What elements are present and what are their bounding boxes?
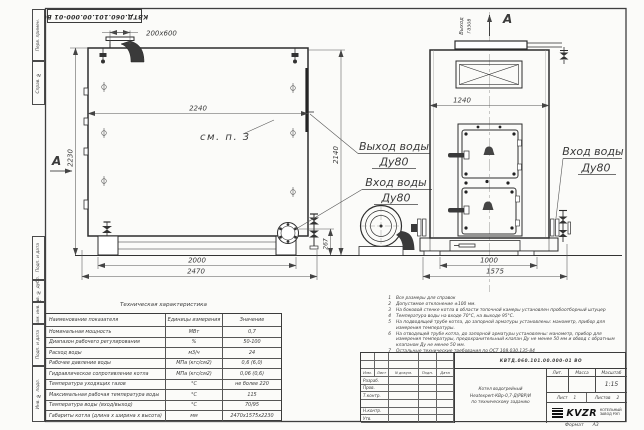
note-item: 6На отводящей трубе котла, до запорной а… — [382, 332, 624, 349]
kvzr-logo-icon — [552, 408, 563, 418]
change-header: Изм. — [361, 369, 375, 377]
table-cell: % — [166, 338, 223, 349]
change-header: Лист — [375, 369, 389, 377]
company-cell: KVZR КОТЕЛЬНЫЙ ЗАВОД РЭП — [546, 403, 627, 423]
upper-door — [448, 130, 522, 178]
tech-table-header: Наименование показателя — [46, 314, 166, 327]
scale-label: Масштаб — [595, 369, 627, 377]
table-cell: 0,06 (0,6) — [223, 369, 281, 380]
margin-stamp-podp-data-2: Подп. и дата — [32, 324, 45, 366]
flue-collar — [455, 41, 527, 49]
table-cell: °С — [166, 380, 223, 391]
tech-table: Наименование показателя Единицы измерени… — [45, 313, 282, 421]
mass-value — [568, 377, 595, 393]
table-cell: МВт — [166, 327, 223, 338]
change-header: Подп. — [419, 369, 437, 377]
lit-value — [546, 377, 568, 393]
inlet-flange — [278, 223, 299, 244]
table-cell: Температура уходящих газов — [46, 380, 166, 391]
door-panel — [458, 124, 522, 236]
water-outlet-dn: Ду80 — [378, 156, 408, 169]
see-note-label: см. п. 3 — [200, 132, 251, 143]
section-a-label: А — [51, 154, 61, 168]
pipe-label-right: Вход воды Ду80 — [556, 145, 624, 218]
role-label: Пров. — [361, 385, 389, 393]
dim-2230: 2230 — [67, 149, 75, 167]
flue-duct — [106, 37, 144, 62]
role-label: Утв. — [361, 415, 389, 423]
water-inlet-right-dn: Ду80 — [580, 162, 610, 175]
fitting-marks — [102, 82, 296, 197]
drawing-sheet: 200х600 2240 2230 2140 2000 2470 267 см.… — [0, 0, 644, 430]
role-label: Разраб. — [361, 377, 389, 385]
table-cell: м3/ч — [166, 348, 223, 359]
note-item: 1Все размеры для справок — [382, 296, 624, 302]
table-cell: 50-100 — [223, 338, 281, 349]
table-cell: 0,6 (6,0) — [223, 359, 281, 370]
view-a-label: А — [502, 12, 512, 26]
margin-stamp-inv-podl: Инв. № подл. — [32, 366, 45, 422]
dim-1000: 1000 — [480, 257, 498, 265]
scale-value: 1:15 — [595, 377, 627, 393]
signature-table: Разраб. Пров. Т.контр. Н.контр. Утв. — [361, 377, 454, 423]
mass-label: Масса — [568, 369, 595, 377]
door-lock-icon — [484, 147, 495, 156]
dim-2470: 2470 — [187, 268, 205, 276]
top-stamp-text: КВТД.060.101.00.000-01 ВО — [41, 13, 148, 20]
inlet-valve-stack — [309, 214, 319, 249]
dim-2140: 2140 — [332, 146, 340, 164]
table-cell: Гидравлическое сопротивление котла — [46, 369, 166, 380]
door-lock-icon — [483, 202, 494, 211]
water-outlet-label: Выход воды — [359, 140, 429, 153]
role-label — [361, 400, 389, 408]
table-cell: Расход воды — [46, 348, 166, 359]
logo-text: KVZR — [566, 408, 597, 419]
sheets-cell: Листов2 — [586, 393, 627, 403]
water-inlet-dn: Ду80 — [380, 192, 410, 205]
door-handle — [448, 208, 465, 213]
table-cell: 70/95 — [223, 401, 281, 412]
margin-stamp-vzam-inv: Взам. инв. № — [32, 302, 45, 324]
tech-table-title: Техническая характеристика — [45, 302, 282, 308]
role-label: Т.контр. — [361, 392, 389, 400]
dim-2000: 2000 — [188, 257, 206, 265]
margin-stamp-podp-data-1: Подп. и дата — [32, 236, 45, 280]
drain-valve-icon — [102, 222, 112, 236]
note-item: 2Допустимое отклонение ±100 мм. — [382, 302, 624, 308]
table-cell: Рабочее давление воды — [46, 359, 166, 370]
table-cell: не более 220 — [223, 380, 281, 391]
table-cell: МПа (кгс/см2) — [166, 359, 223, 370]
door-handle — [448, 153, 465, 158]
base-frame — [420, 238, 558, 256]
margin-stamp-sprav-no: Справ. № — [32, 61, 45, 105]
sheet-cell: Лист1 — [546, 393, 586, 403]
table-cell: °С — [166, 390, 223, 401]
front-left-flange — [411, 219, 426, 236]
table-cell: Номинальная мощность — [46, 327, 166, 338]
table-cell: мм — [166, 411, 223, 422]
table-cell: Габариты котла (длина х ширина х высота) — [46, 411, 166, 422]
table-cell: 115 — [223, 390, 281, 401]
boiler-body-side — [88, 48, 308, 236]
table-cell: Температура воды (вход/выход) — [46, 401, 166, 412]
top-designation-stamp: КВТД.060.101.00.000-01 ВО — [47, 9, 142, 23]
explosion-hatch — [456, 61, 522, 88]
fan-blower — [359, 206, 415, 256]
dim-267: 267 — [323, 238, 330, 250]
role-label: Н.контр. — [361, 408, 389, 416]
technical-notes: 1Все размеры для справок 2Допустимое отк… — [382, 296, 624, 355]
change-header: N докум. — [389, 369, 419, 377]
table-cell: МПа (кгс/см2) — [166, 369, 223, 380]
tech-table-header: Единицы измерения — [166, 314, 223, 327]
table-cell: Диапазон рабочего регулирования — [46, 338, 166, 349]
pipe-labels-left: Выход воды Ду80 Вход воды Ду80 — [296, 114, 432, 229]
company-logo: KVZR КОТЕЛЬНЫЙ ЗАВОД РЭП — [552, 408, 621, 419]
table-cell: 24 — [223, 348, 281, 359]
front-right-flange-valve — [551, 210, 571, 242]
table-cell: 0,7 — [223, 327, 281, 338]
dim-2240: 2240 — [189, 105, 207, 113]
lit-label: Лит. — [546, 369, 568, 377]
table-cell: 2470х1575х2230 — [223, 411, 281, 422]
drawing-designation: КВТД.060.101.00.000-01 ВО — [454, 353, 627, 369]
dim-1575: 1575 — [486, 268, 504, 276]
table-cell: Максимальная рабочая температура воды — [46, 390, 166, 401]
note-item: 4Температура воды на входе 70°С, на выхо… — [382, 314, 624, 320]
product-name: Котел водогрейный Heatexpert-КВр-0,7-Д(Р… — [454, 369, 546, 423]
side-view — [84, 37, 319, 255]
format-label: Формат А3 — [565, 423, 625, 428]
change-header: Дата — [437, 369, 454, 377]
table-cell: °С — [166, 401, 223, 412]
note-item: 5На подводящей трубе котла, до запорной … — [382, 320, 624, 331]
dim-duct: 200х600 — [146, 30, 177, 38]
lower-door — [448, 188, 520, 234]
company-name: КОТЕЛЬНЫЙ ЗАВОД РЭП — [600, 409, 622, 417]
note-item: 3На боковой стенке котла в области топоч… — [382, 308, 624, 314]
gas-outlet-label2: газов — [467, 19, 473, 34]
tech-table-header: Значение — [223, 314, 281, 327]
gas-outlet-label: Выход — [459, 17, 465, 35]
water-inlet-label: Вход воды — [365, 176, 427, 189]
margin-stamp-perv-primen: Перв. примен. — [32, 9, 45, 61]
side-view-dimensions — [50, 31, 345, 281]
water-inlet-right-label: Вход воды — [562, 145, 624, 158]
dim-1240: 1240 — [453, 97, 471, 105]
change-table: Изм. Лист N докум. Подп. Дата — [361, 353, 454, 377]
title-block: КВТД.060.101.00.000-01 ВО Изм. Лист N до… — [360, 352, 626, 422]
leg-left — [98, 236, 118, 255]
